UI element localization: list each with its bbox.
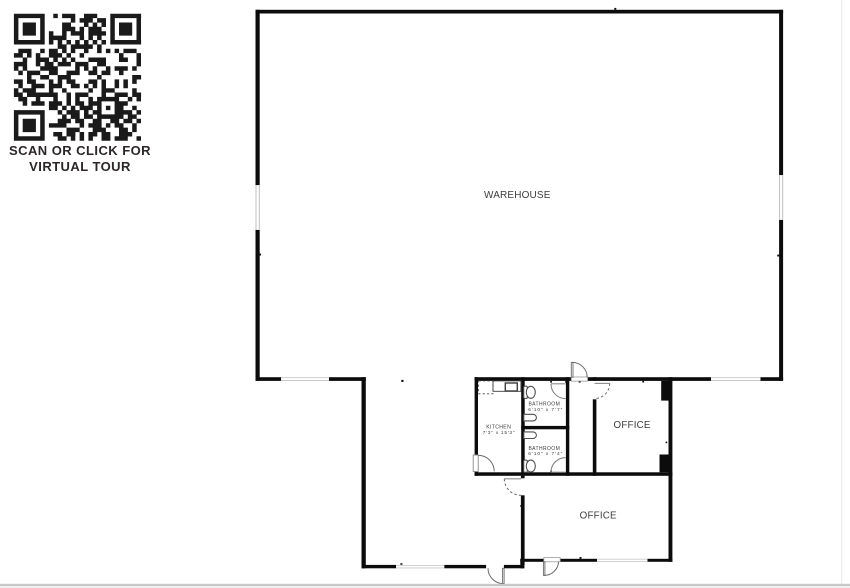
svg-text:WAREHOUSE: WAREHOUSE [484, 190, 551, 201]
svg-text:OFFICE: OFFICE [614, 420, 651, 431]
svg-text:OFFICE: OFFICE [580, 511, 617, 522]
svg-text:6′10″ x 7′7″: 6′10″ x 7′7″ [528, 407, 563, 413]
svg-text:BATHROOM: BATHROOM [528, 446, 560, 452]
svg-text:6′10″ x 7′4″: 6′10″ x 7′4″ [528, 451, 563, 457]
svg-text:7′3″ x 15′3″: 7′3″ x 15′3″ [483, 430, 516, 436]
svg-text:KITCHEN: KITCHEN [486, 425, 511, 431]
svg-text:BATHROOM: BATHROOM [528, 401, 560, 407]
